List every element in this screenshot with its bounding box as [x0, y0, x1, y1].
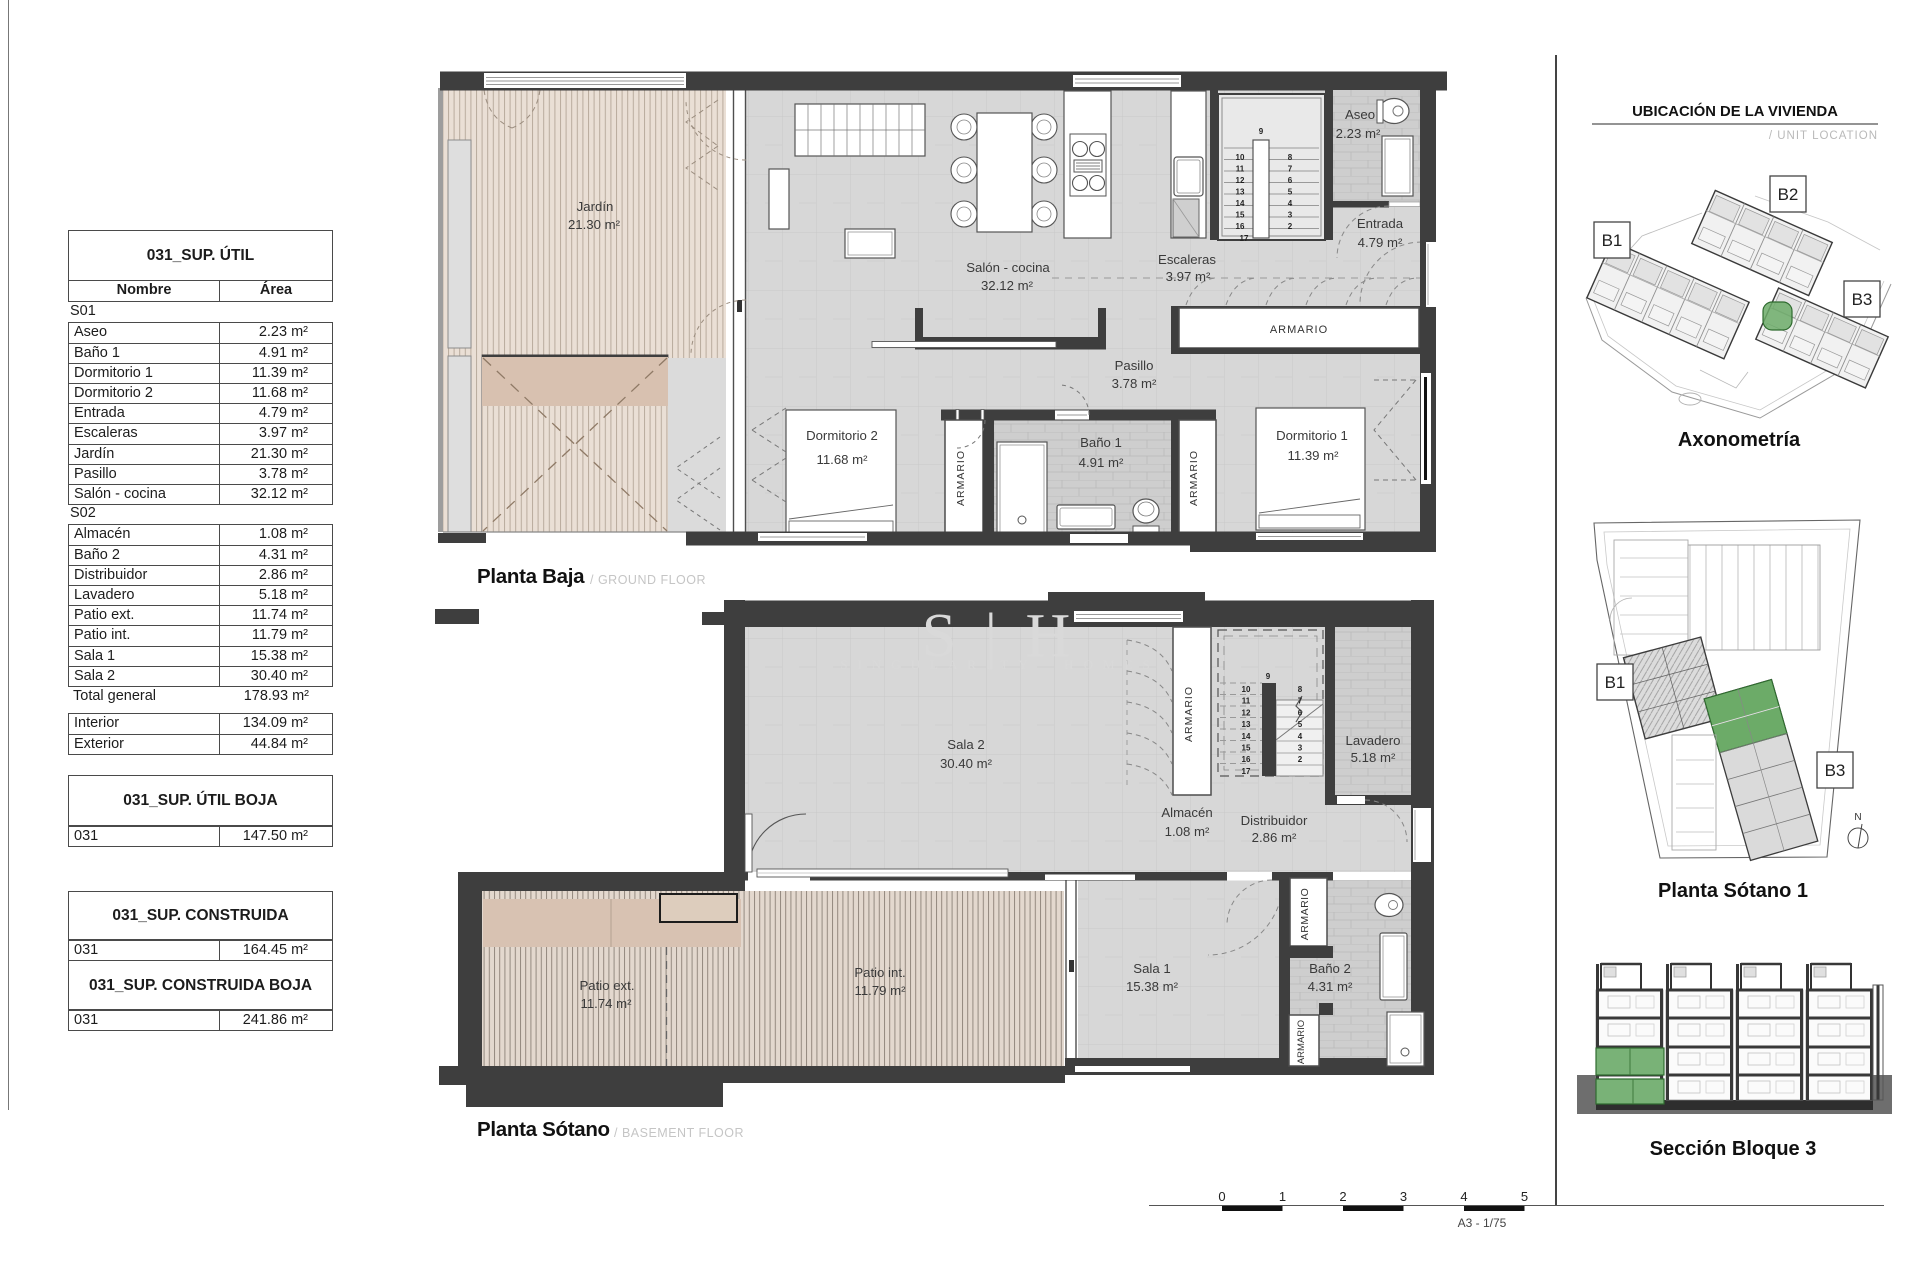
svg-text:3.97 m²: 3.97 m²: [1166, 269, 1211, 284]
svg-text:12: 12: [1242, 708, 1251, 717]
svg-text:Jardín: Jardín: [577, 199, 614, 214]
svg-text:Patio ext.: Patio ext.: [580, 978, 635, 993]
svg-text:13: 13: [1236, 188, 1245, 197]
svg-text:17: 17: [1240, 234, 1249, 243]
svg-text:10: 10: [1236, 153, 1245, 162]
svg-text:16: 16: [1236, 222, 1245, 231]
svg-text:Planta Sótano 1: Planta Sótano 1: [1658, 880, 1808, 902]
svg-text:ARMARIO: ARMARIO: [1296, 1020, 1307, 1064]
svg-text:Dormitorio 1: Dormitorio 1: [1276, 428, 1348, 443]
svg-text:5: 5: [1298, 720, 1303, 729]
svg-text:B3: B3: [1825, 761, 1846, 780]
svg-text:ARMARIO: ARMARIO: [1188, 450, 1200, 506]
svg-text:10: 10: [1242, 685, 1251, 694]
svg-text:Entrada: Entrada: [1357, 216, 1404, 231]
svg-text:14: 14: [1242, 732, 1251, 741]
svg-text:17: 17: [1242, 767, 1251, 776]
svg-text:SINGULARITY HOMES: SINGULARITY HOMES: [840, 657, 1159, 672]
svg-text:/ UNIT LOCATION: / UNIT LOCATION: [1769, 130, 1878, 142]
svg-text:Salón - cocina: Salón - cocina: [966, 260, 1050, 275]
svg-text:21.30 m²: 21.30 m²: [568, 217, 621, 232]
svg-text:N: N: [1854, 812, 1861, 823]
svg-text:Baño 2: Baño 2: [1309, 961, 1351, 976]
svg-text:11.79 m²: 11.79 m²: [854, 983, 906, 998]
svg-text:Almacén: Almacén: [1161, 805, 1212, 820]
svg-text:3: 3: [1298, 744, 1303, 753]
svg-text:4: 4: [1460, 1189, 1467, 1204]
svg-text:Patio int.: Patio int.: [854, 965, 905, 980]
svg-text:Sala 2: Sala 2: [947, 737, 984, 752]
svg-text:7: 7: [1288, 165, 1293, 174]
svg-text:11: 11: [1242, 697, 1251, 706]
svg-text:15: 15: [1242, 744, 1251, 753]
svg-text:Escaleras: Escaleras: [1158, 252, 1216, 267]
svg-text:UBICACIÓN DE LA VIVIENDA: UBICACIÓN DE LA VIVIENDA: [1632, 102, 1838, 120]
svg-text:Sección Bloque 3: Sección Bloque 3: [1650, 1138, 1817, 1160]
svg-text:Aseo: Aseo: [1345, 107, 1375, 122]
svg-text:ARMARIO: ARMARIO: [1183, 686, 1195, 742]
svg-text:8: 8: [1288, 153, 1293, 162]
svg-text:11: 11: [1236, 165, 1245, 174]
svg-text:15: 15: [1236, 211, 1245, 220]
svg-text:11.39 m²: 11.39 m²: [1287, 448, 1339, 463]
svg-text:11.68 m²: 11.68 m²: [816, 452, 868, 467]
svg-text:14: 14: [1236, 199, 1245, 208]
svg-text:4.91 m²: 4.91 m²: [1079, 455, 1124, 470]
svg-text:2: 2: [1288, 222, 1293, 231]
svg-text:16: 16: [1242, 755, 1251, 764]
svg-text:32.12 m²: 32.12 m²: [981, 278, 1034, 293]
svg-text:ARMARIO: ARMARIO: [955, 450, 967, 506]
svg-text:4: 4: [1298, 732, 1303, 741]
svg-text:0: 0: [1218, 1189, 1225, 1204]
svg-text:5: 5: [1288, 188, 1293, 197]
svg-text:5: 5: [1521, 1189, 1528, 1204]
svg-text:3: 3: [1400, 1189, 1407, 1204]
svg-text:8: 8: [1298, 685, 1303, 694]
svg-text:6: 6: [1288, 176, 1293, 185]
svg-text:ARMARIO: ARMARIO: [1299, 888, 1311, 941]
svg-text:Lavadero: Lavadero: [1346, 733, 1401, 748]
svg-text:15.38 m²: 15.38 m²: [1126, 979, 1179, 994]
svg-text:1: 1: [1279, 1189, 1286, 1204]
svg-text:1.08 m²: 1.08 m²: [1165, 824, 1210, 839]
svg-text:Dormitorio 2: Dormitorio 2: [806, 428, 878, 443]
svg-text:12: 12: [1236, 176, 1245, 185]
svg-text:5.18 m²: 5.18 m²: [1351, 750, 1396, 765]
svg-text:3: 3: [1288, 211, 1293, 220]
svg-text:6: 6: [1298, 708, 1303, 717]
svg-text:B1: B1: [1602, 231, 1623, 250]
svg-text:2.86 m²: 2.86 m²: [1252, 830, 1297, 845]
svg-text:11.74 m²: 11.74 m²: [580, 996, 632, 1011]
svg-text:B3: B3: [1852, 290, 1873, 309]
svg-text:13: 13: [1242, 720, 1251, 729]
svg-text:B2: B2: [1778, 185, 1799, 204]
svg-text:2: 2: [1298, 755, 1303, 764]
svg-text:Axonometría: Axonometría: [1678, 429, 1801, 451]
svg-text:ARMARIO: ARMARIO: [1270, 324, 1328, 336]
svg-text:4.79 m²: 4.79 m²: [1358, 235, 1403, 250]
svg-text:B1: B1: [1605, 673, 1626, 692]
svg-text:4.31 m²: 4.31 m²: [1308, 979, 1353, 994]
svg-text:Distribuidor: Distribuidor: [1241, 813, 1308, 828]
svg-text:9: 9: [1266, 672, 1271, 681]
svg-text:Sala 1: Sala 1: [1133, 961, 1170, 976]
svg-text:3.78 m²: 3.78 m²: [1112, 376, 1157, 391]
svg-text:9: 9: [1259, 127, 1264, 136]
svg-text:Baño 1: Baño 1: [1080, 435, 1122, 450]
svg-text:2.23 m²: 2.23 m²: [1336, 126, 1381, 141]
svg-text:7: 7: [1298, 697, 1303, 706]
svg-text:30.40 m²: 30.40 m²: [940, 756, 993, 771]
svg-text:4: 4: [1288, 199, 1293, 208]
svg-text:A3 - 1/75: A3 - 1/75: [1458, 1216, 1507, 1230]
svg-text:Pasillo: Pasillo: [1115, 358, 1154, 373]
svg-text:2: 2: [1339, 1189, 1346, 1204]
